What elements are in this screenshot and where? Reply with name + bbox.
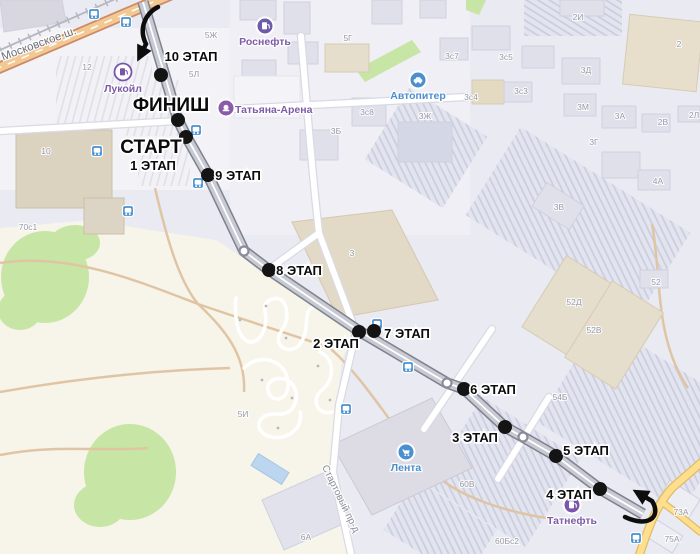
- building-label: 3с8: [360, 107, 374, 117]
- building-label: 3с7: [445, 51, 459, 61]
- building: [398, 122, 452, 162]
- stage-label: 7 ЭТАП: [384, 326, 430, 341]
- map-viewport: ЛукойлРоснефтьТатьяна-АренаАвтопитерЛент…: [0, 0, 700, 554]
- building-label: 3М: [577, 102, 589, 112]
- building: [623, 14, 700, 91]
- building-label: 3В: [554, 202, 565, 212]
- map-canvas[interactable]: ЛукойлРоснефтьТатьяна-АренаАвтопитерЛент…: [0, 0, 700, 554]
- building: [325, 44, 369, 72]
- building: [372, 0, 402, 24]
- bus-stop-icon[interactable]: [92, 146, 103, 157]
- building-label: 73А: [673, 507, 688, 517]
- bus-stop-icon[interactable]: [341, 404, 352, 415]
- route-circle-marker: [443, 379, 452, 388]
- building-label: 3с3: [514, 86, 528, 96]
- building-label: 3: [350, 248, 355, 258]
- building-label: 4А: [653, 176, 664, 186]
- building-label: 2: [677, 39, 682, 49]
- park-area: [0, 290, 42, 330]
- stage-label: ФИНИШ: [133, 95, 209, 116]
- building-label: 52Д: [566, 297, 581, 307]
- poi-icon-arena[interactable]: [218, 100, 235, 117]
- poi-label: Татнефть: [547, 515, 598, 527]
- stage-dot: [593, 482, 607, 496]
- bus-stop-icon[interactable]: [89, 9, 100, 20]
- route-circle-marker: [519, 433, 528, 442]
- poi-label: Лукойл: [104, 83, 142, 95]
- building-label: 3А: [615, 111, 626, 121]
- building: [16, 130, 112, 208]
- stage-label: 1 ЭТАП: [130, 158, 176, 173]
- building: [522, 46, 554, 68]
- building-label: 3Ж: [419, 111, 432, 121]
- building-label: 75А: [664, 534, 679, 544]
- bus-stop-icon[interactable]: [123, 206, 134, 217]
- route-circle-marker: [240, 247, 249, 256]
- bus-stop-icon[interactable]: [403, 362, 414, 373]
- poi-label: Лента: [391, 462, 422, 474]
- poi-label: Татьяна-Арена: [235, 104, 313, 116]
- building: [284, 2, 310, 34]
- building-label: 5Г: [343, 33, 353, 43]
- building: [420, 0, 446, 18]
- building: [602, 152, 640, 178]
- building-label: 70с1: [19, 222, 38, 232]
- building-label: 3Д: [581, 65, 592, 75]
- building-label: 12: [82, 62, 92, 72]
- building: [472, 26, 510, 50]
- bus-stop-icon[interactable]: [121, 17, 132, 28]
- building-label: 60В: [459, 479, 474, 489]
- poi-icon-fuel[interactable]: [257, 18, 274, 35]
- bus-stop-icon[interactable]: [631, 533, 642, 544]
- stage-dot: [498, 420, 512, 434]
- building-label: 3Б: [331, 126, 342, 136]
- stage-label: 5 ЭТАП: [563, 443, 609, 458]
- bus-stop-icon[interactable]: [193, 178, 204, 189]
- park-area: [74, 483, 126, 527]
- building-label: 5И: [238, 409, 249, 419]
- building-label: 3Г: [589, 137, 599, 147]
- building-label: 2Л: [689, 110, 699, 120]
- poi-label: Роснефть: [239, 36, 291, 48]
- stage-label: 8 ЭТАП: [276, 263, 322, 278]
- stage-label: 9 ЭТАП: [215, 168, 261, 183]
- stage-label: 4 ЭТАП: [546, 487, 592, 502]
- stage-dot: [367, 324, 381, 338]
- building-label: 3с4: [464, 92, 478, 102]
- building-label: 10: [41, 146, 51, 156]
- building-label: 54Б: [552, 392, 567, 402]
- building-label: 5Ж: [205, 30, 218, 40]
- poi-icon-car[interactable]: [410, 72, 427, 89]
- stage-dot: [457, 382, 471, 396]
- building-label: 3с5: [499, 52, 513, 62]
- stage-dot: [549, 449, 563, 463]
- stage-label: СТАРТ: [120, 137, 182, 158]
- stage-dot: [201, 168, 215, 182]
- building-label: 6А: [301, 532, 312, 542]
- stage-label: 6 ЭТАП: [470, 382, 516, 397]
- stage-dot: [154, 68, 168, 82]
- poi-label: Автопитер: [390, 90, 446, 102]
- stage-label: 3 ЭТАП: [452, 430, 498, 445]
- building-label: 5Л: [189, 69, 199, 79]
- building-label: 60Бс2: [495, 536, 519, 546]
- stage-dot: [262, 263, 276, 277]
- building: [240, 0, 276, 20]
- stage-label: 2 ЭТАП: [313, 336, 359, 351]
- building-label: 2В: [658, 117, 669, 127]
- building: [84, 198, 124, 234]
- building-label: 52В: [586, 325, 601, 335]
- building-label: 52: [651, 277, 661, 287]
- stage-label: 10 ЭТАП: [164, 49, 217, 64]
- building-label: 2И: [573, 12, 584, 22]
- poi-icon-cart[interactable]: [398, 444, 415, 461]
- poi-icon-fuel[interactable]: [115, 64, 132, 81]
